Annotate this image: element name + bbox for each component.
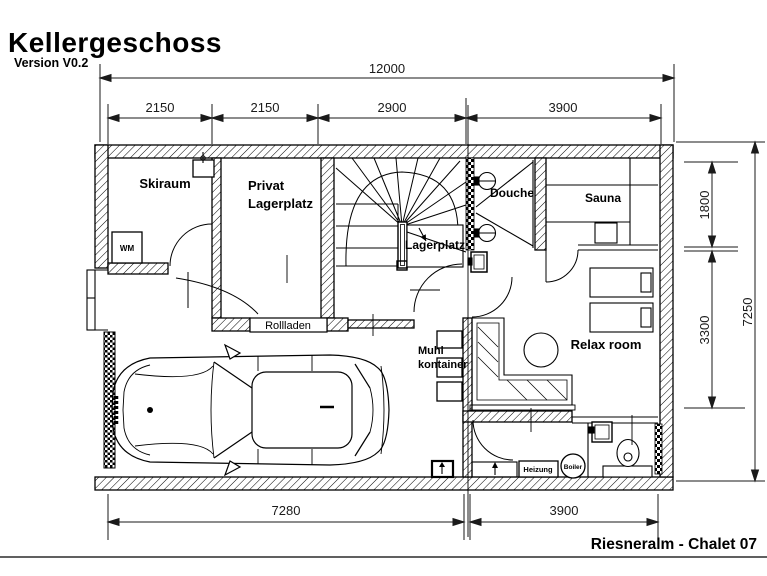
- car-body: [112, 355, 389, 465]
- version-label: Version V0.2: [14, 56, 88, 70]
- label-rollladen: Rollladen: [265, 320, 311, 332]
- label-wm: WM: [120, 244, 135, 253]
- door-sauna: [546, 250, 578, 282]
- wall-exterior-top: [95, 145, 673, 158]
- wall-exterior-bottom: [95, 477, 673, 490]
- dim-bottom-2: 3900: [550, 503, 579, 518]
- dim-top-1: 2150: [146, 100, 175, 115]
- room-label-relax: Relax room: [571, 337, 642, 352]
- dim-overall-height: 7250: [740, 298, 755, 327]
- label-muhl-1: Muhl: [418, 345, 444, 357]
- door-relax: [472, 277, 512, 317]
- dim-right-2: 3300: [697, 316, 712, 345]
- garage-drain-box: [432, 461, 453, 477]
- dim-top-2: 2150: [251, 100, 280, 115]
- room-label-skiraum: Skiraum: [139, 176, 190, 191]
- douche-fixtures: [468, 160, 533, 272]
- toilet-base: [603, 466, 652, 477]
- floor-plan-sheet: Kellergeschoss Version V0.2 Riesneralm -…: [0, 0, 767, 576]
- container-3: [437, 382, 462, 401]
- left-window: [87, 270, 95, 330]
- lounger-1: [590, 268, 653, 297]
- page-title: Kellergeschoss: [8, 27, 222, 58]
- tiled-wall-wc: [655, 424, 662, 474]
- dim-bottom-1: 7280: [272, 503, 301, 518]
- door-tech: [473, 420, 513, 460]
- label-heizung: Heizung: [523, 465, 553, 474]
- door-corridor-garage: [414, 264, 462, 312]
- sauna-heater: [595, 223, 617, 243]
- car-rear-window: [355, 364, 370, 388]
- corner-sofa: [472, 318, 572, 405]
- wall-garage-divider: [463, 318, 472, 477]
- room-label-douche: Douche: [490, 186, 534, 200]
- car-windshield: [214, 362, 252, 388]
- wall-privat-stairs: [321, 158, 334, 318]
- lounger-2: [590, 303, 653, 332]
- wall-skiraum-bottom: [108, 263, 168, 274]
- wall-band-thin: [348, 320, 414, 328]
- tiled-wall-douche: [466, 158, 474, 250]
- wall-skiraum-privat: [212, 158, 221, 318]
- round-table: [524, 333, 558, 367]
- dim-overall-width: 12000: [369, 61, 405, 76]
- room-label-sauna: Sauna: [585, 191, 621, 205]
- doors: [170, 224, 578, 460]
- floor-plan-drawing: Kellergeschoss Version V0.2 Riesneralm -…: [0, 0, 767, 576]
- dim-right-1: 1800: [697, 191, 712, 220]
- car: [112, 345, 389, 475]
- wall-relax-bottom: [463, 411, 572, 422]
- wc-fixtures: [589, 415, 652, 477]
- project-title: Riesneralm - Chalet 07: [591, 536, 757, 553]
- car-roof: [252, 372, 352, 448]
- room-label-privat-1: Privat: [248, 178, 285, 193]
- wall-douche-sauna: [535, 158, 546, 250]
- dim-top-3: 2900: [378, 100, 407, 115]
- label-muhl-2: kontainer: [418, 359, 468, 371]
- room-label-privat-2: Lagerplatz: [248, 196, 314, 211]
- wall-exterior-left-upper: [95, 145, 108, 268]
- door-skiraum: [170, 224, 212, 266]
- room-label-stair-storage: Lagerplatz: [405, 238, 465, 252]
- wall-band-left: [212, 318, 250, 331]
- dim-top-4: 3900: [549, 100, 578, 115]
- wall-band-mid: [327, 318, 348, 331]
- label-boiler: Boiler: [564, 464, 583, 471]
- garage-door: [104, 332, 115, 468]
